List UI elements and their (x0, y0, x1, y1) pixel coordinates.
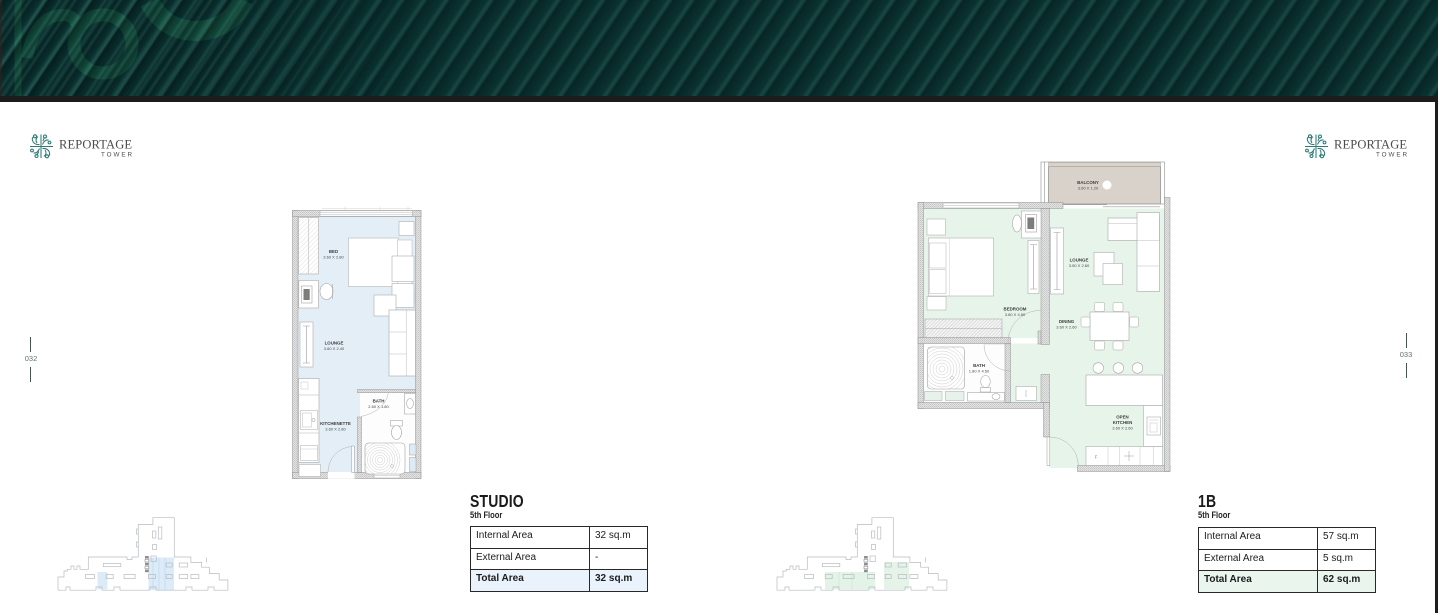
svg-text:KITCHEN: KITCHEN (1113, 420, 1133, 425)
svg-text:LOUNGE: LOUNGE (325, 341, 344, 346)
svg-text:2.60 X 1.80: 2.60 X 1.80 (368, 404, 389, 409)
svg-text:REPORTAGE: REPORTAGE (1334, 137, 1407, 151)
svg-text:TOWER: TOWER (101, 152, 132, 159)
svg-text:BATH: BATH (373, 398, 385, 403)
svg-text:BEDROOM: BEDROOM (1004, 307, 1027, 312)
svg-text:DINING: DINING (1059, 319, 1075, 324)
svg-text:1.80 X 4.50: 1.80 X 4.50 (969, 369, 990, 374)
svg-text:BED: BED (329, 249, 338, 254)
svg-text:3.60 X 2.40: 3.60 X 2.40 (324, 346, 345, 351)
svg-text:3.60 X 2.60: 3.60 X 2.60 (1056, 325, 1077, 330)
svg-text:LOUNGE: LOUNGE (1070, 258, 1089, 263)
svg-text:OPEN: OPEN (1116, 415, 1128, 420)
svg-text:TOWER: TOWER (1376, 152, 1407, 159)
svg-text:BALCONY: BALCONY (1077, 180, 1099, 185)
svg-text:3.60 X 2.60: 3.60 X 2.60 (1112, 426, 1133, 431)
svg-text:3.60 X 2.80: 3.60 X 2.80 (325, 427, 346, 432)
svg-text:3.50 X 2.60: 3.50 X 2.60 (1069, 263, 1090, 268)
svg-text:KITCHENETTE: KITCHENETTE (320, 421, 351, 426)
svg-text:3.80 X 4.50: 3.80 X 4.50 (1005, 312, 1026, 317)
svg-text:REPORTAGE: REPORTAGE (59, 137, 132, 151)
svg-text:F: F (1095, 455, 1098, 460)
svg-text:3.60 X 1.20: 3.60 X 1.20 (1078, 186, 1099, 191)
svg-text:BATH: BATH (973, 363, 985, 368)
svg-text:3.60 X 2.80: 3.60 X 2.80 (323, 255, 344, 260)
